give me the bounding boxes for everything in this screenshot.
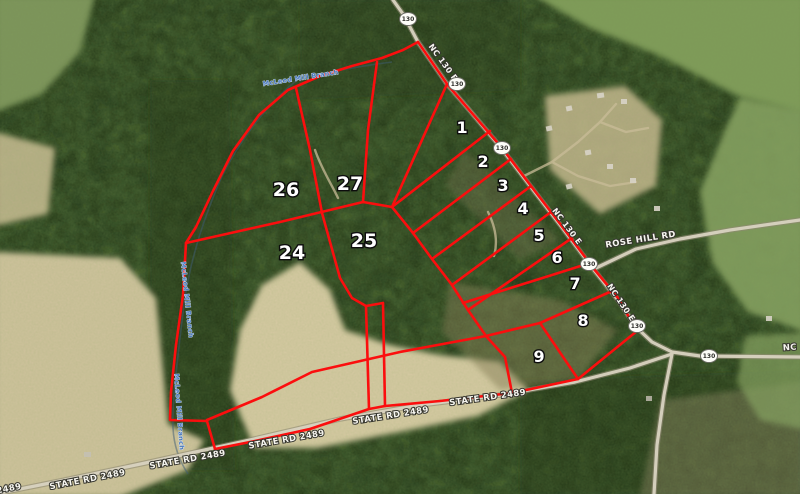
- lot-label-26: 26: [273, 179, 299, 201]
- shield-number: 130: [451, 81, 464, 88]
- lot-label-4: 4: [517, 199, 528, 218]
- lot-label-5: 5: [533, 226, 544, 245]
- highway-shield-130: 130: [581, 258, 598, 271]
- lot-label-3: 3: [497, 176, 508, 195]
- lot-label-27: 27: [337, 173, 363, 195]
- shield-number: 130: [402, 16, 415, 23]
- highway-shield-130: 130: [494, 142, 511, 155]
- lot-label-1: 1: [456, 118, 467, 137]
- shield-number: 130: [583, 261, 596, 268]
- shield-number: 130: [703, 353, 716, 360]
- highway-shield-130: 130: [701, 350, 718, 363]
- lot-label-6: 6: [551, 248, 562, 267]
- highway-shield-130: 130: [629, 320, 646, 333]
- map-viewport: McLeod Mill BranchMcLeod Mill BranchMcLe…: [0, 0, 800, 494]
- highway-shield-130: 130: [449, 78, 466, 91]
- lot-label-25: 25: [351, 230, 377, 252]
- road-label-4: NC: [782, 343, 797, 354]
- highway-shield-130: 130: [400, 13, 417, 26]
- lot-label-9: 9: [533, 347, 544, 366]
- lot-label-24: 24: [279, 242, 305, 264]
- shield-number: 130: [496, 145, 509, 152]
- satellite-background: [0, 0, 800, 494]
- map-canvas[interactable]: McLeod Mill BranchMcLeod Mill BranchMcLe…: [0, 0, 800, 494]
- lot-label-8: 8: [577, 311, 588, 330]
- lot-label-7: 7: [569, 274, 580, 293]
- shield-number: 130: [631, 323, 644, 330]
- lot-label-2: 2: [477, 152, 488, 171]
